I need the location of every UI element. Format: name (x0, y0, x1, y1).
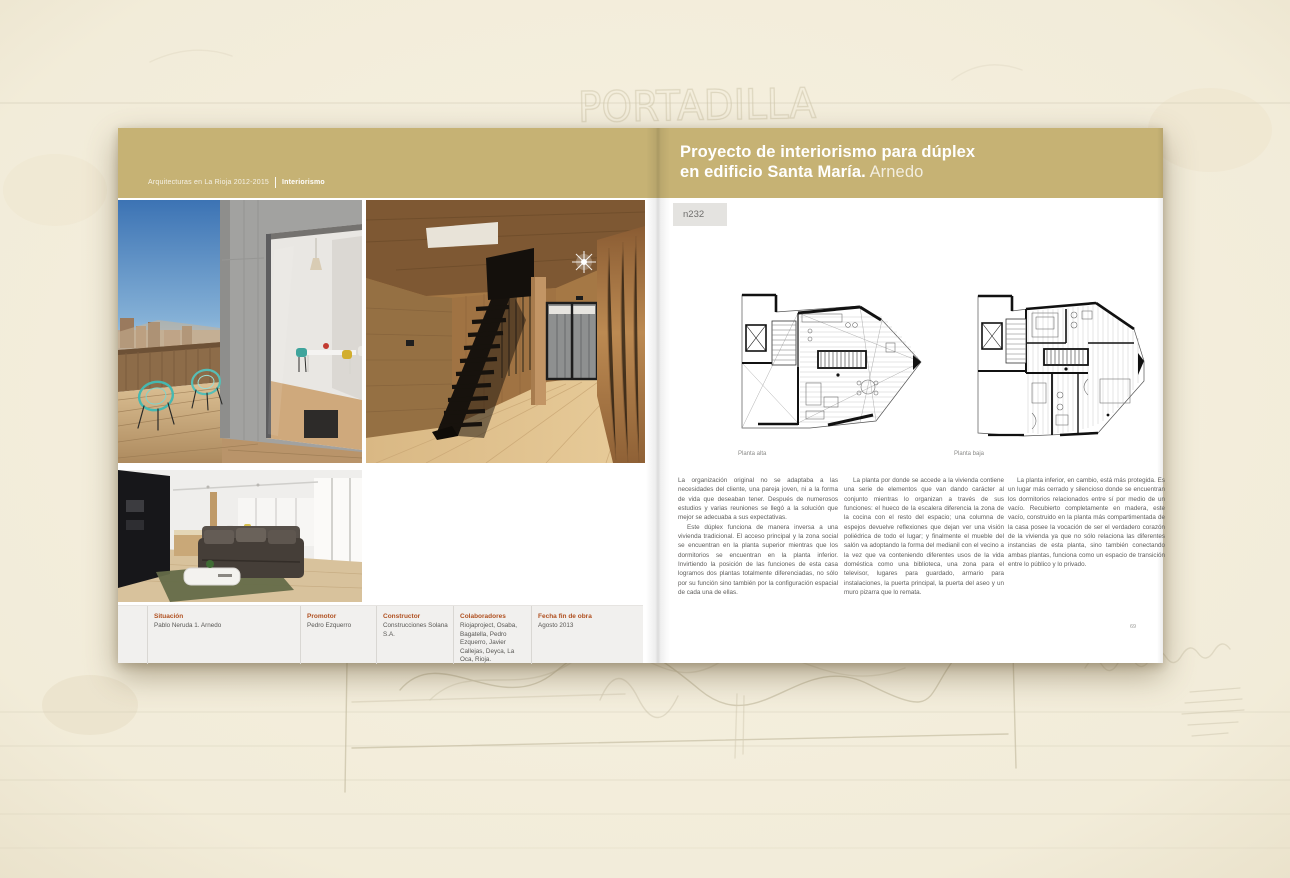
body-column-2: La planta por donde se accede a la vivie… (844, 476, 1004, 597)
left-wood-wall (366, 278, 452, 438)
photo-terrace (118, 200, 362, 463)
section-label: Interiorismo (282, 179, 325, 186)
header-divider (275, 177, 276, 188)
paper-stain (3, 154, 107, 226)
meta-value: Riojaproject, Osaba, Bagatella, Pedro Ez… (460, 622, 527, 665)
page-gutter-shadow (646, 128, 670, 663)
meta-promotor: Promotor Pedro Ezquerro (300, 606, 376, 664)
portadilla-watermark: PORTADILLA (578, 79, 817, 132)
meta-value: Pedro Ezquerro (307, 622, 372, 631)
paragraph: La planta por donde se accede a la vivie… (844, 476, 1004, 597)
photo-living-room (118, 470, 362, 602)
meta-fecha-fin: Fecha fin de obra Agosto 2013 (531, 606, 643, 664)
paper-stain (42, 675, 138, 735)
stair-void (304, 410, 338, 438)
flowers (323, 343, 329, 349)
interior-through-glass (266, 224, 362, 450)
project-title: Proyecto de interiorismo para dúplex en … (680, 143, 975, 182)
project-title-line2: en edificio Santa María. (680, 163, 866, 181)
scanned-book-page: PORTADILLA Arquitecturas en La (0, 0, 1290, 878)
project-title-line1: Proyecto de interiorismo para dúplex (680, 143, 975, 163)
plan-caption-lower: Planta baja (954, 451, 984, 457)
photo-staircase (366, 200, 645, 463)
meta-label: Fecha fin de obra (538, 613, 639, 620)
plan-stair-void (1044, 349, 1088, 365)
project-code-badge: n232 (673, 203, 727, 226)
teal-chair (296, 348, 307, 357)
meta-situacion: Situación Pablo Neruda 1. Arnedo (147, 606, 300, 664)
plan-caption-upper: Planta alta (738, 451, 766, 457)
book-spread: Arquitecturas en La Rioja 2012-2015 Inte… (118, 128, 1163, 663)
light-switch (406, 340, 414, 346)
meta-label: Colaboradores (460, 613, 527, 620)
body-column-1: La organización original no se adaptaba … (678, 476, 838, 597)
meta-value: Pablo Neruda 1. Arnedo (154, 622, 296, 631)
plan-stair-void (818, 351, 866, 368)
glass-partition (547, 303, 597, 379)
project-metadata-strip: Situación Pablo Neruda 1. Arnedo Promoto… (118, 605, 643, 663)
project-location: Arnedo (866, 163, 924, 181)
plant (206, 560, 214, 568)
meta-value: Construcciones Solana S.A. (383, 622, 449, 639)
floor-plan-upper (710, 283, 923, 445)
ceiling-vent (576, 296, 583, 300)
series-header: Arquitecturas en La Rioja 2012-2015 Inte… (148, 177, 325, 188)
meta-label: Situación (154, 613, 296, 620)
floor-plan-lower (948, 283, 1161, 445)
meta-colaboradores: Colaboradores Riojaproject, Osaba, Bagat… (453, 606, 531, 664)
series-title: Arquitecturas en La Rioja 2012-2015 (148, 179, 269, 186)
meta-value: Agosto 2013 (538, 622, 639, 631)
meta-constructor: Constructor Construcciones Solana S.A. (376, 606, 453, 664)
paragraph: La planta inferior, en cambio, está más … (1008, 476, 1165, 569)
page-number: 69 (1130, 624, 1136, 630)
meta-label: Promotor (307, 613, 372, 620)
body-column-3: La planta inferior, en cambio, está más … (1008, 476, 1165, 569)
paragraph: Este dúplex funciona de manera inversa a… (678, 523, 838, 598)
plan-stairs-core (1006, 319, 1026, 363)
yellow-chair (342, 350, 352, 359)
header-band: Arquitecturas en La Rioja 2012-2015 Inte… (118, 128, 1163, 198)
paragraph: La organización original no se adaptaba … (678, 476, 838, 523)
paper-stain (1148, 88, 1272, 172)
meta-label: Constructor (383, 613, 449, 620)
